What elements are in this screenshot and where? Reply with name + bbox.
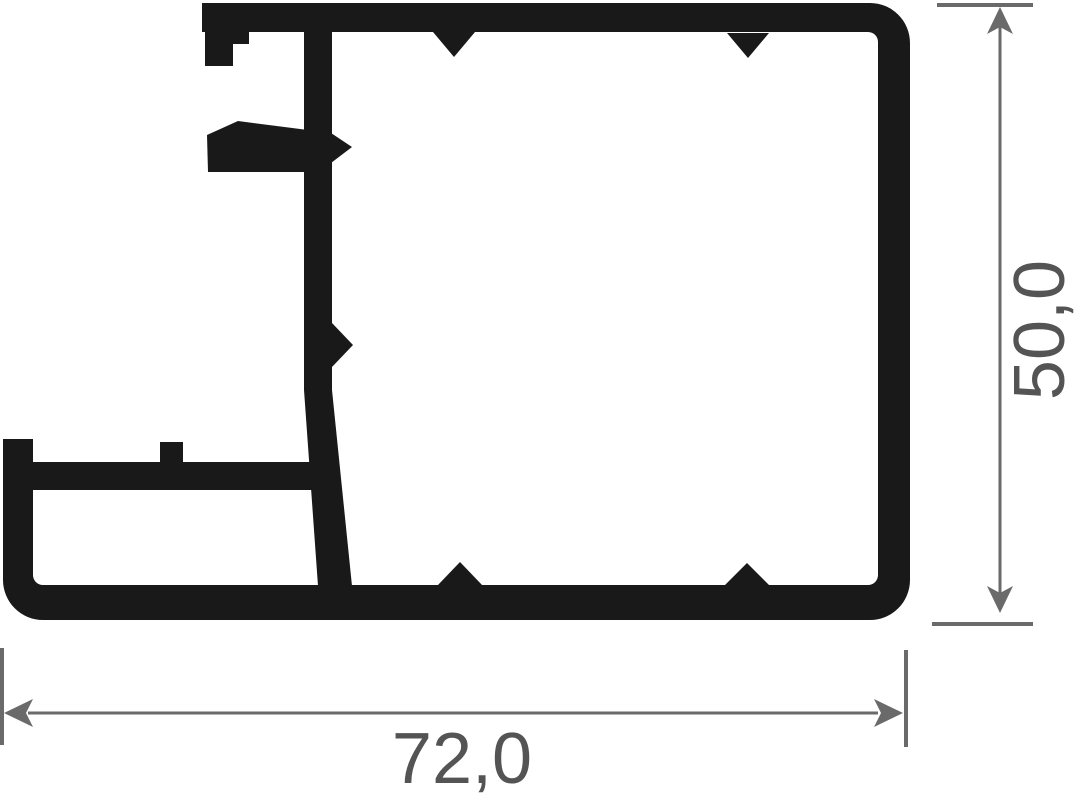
profile-top-hook xyxy=(205,28,233,66)
width-dimension-label: 72,0 xyxy=(392,719,532,799)
profile-cross-section-drawing: 72,0 50,0 xyxy=(0,0,1075,800)
height-dimension-label: 50,0 xyxy=(1000,260,1075,400)
profile-shelf xyxy=(33,462,318,490)
profile-top-hook-tab xyxy=(233,32,249,44)
technical-drawing-canvas: 72,0 50,0 xyxy=(0,0,1075,800)
profile-shelf-tab xyxy=(160,442,183,464)
drawing-background xyxy=(0,0,1075,800)
